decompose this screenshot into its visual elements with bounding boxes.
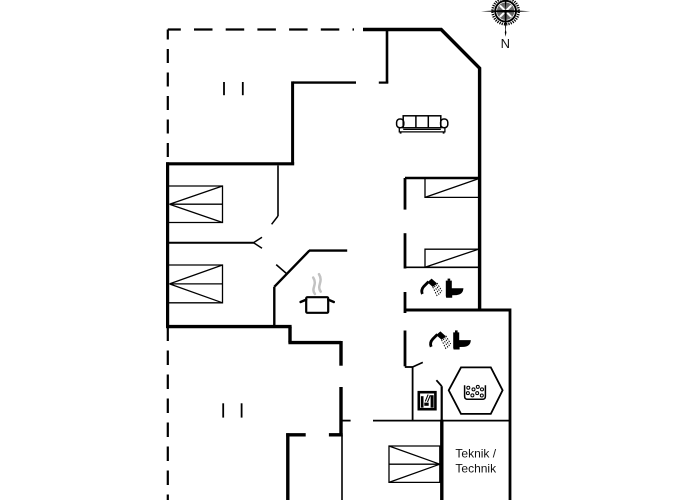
svg-text:Teknik /: Teknik /: [455, 446, 496, 460]
svg-text:N: N: [501, 36, 510, 51]
svg-text:Technik: Technik: [455, 462, 497, 476]
